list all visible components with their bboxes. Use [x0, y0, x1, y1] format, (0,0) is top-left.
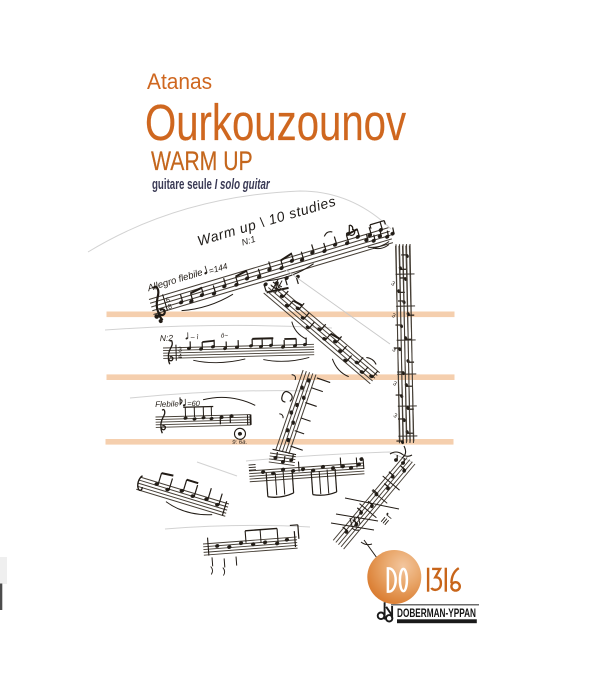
svg-text:– ì: – ì: [190, 334, 199, 341]
svg-text:Flebile: Flebile: [155, 399, 179, 409]
svg-text:3: 3: [391, 381, 397, 388]
svg-text:=144: =144: [207, 261, 228, 276]
svg-text:4: 4: [178, 354, 182, 361]
svg-text:DOBERMAN-YPPAN: DOBERMAN-YPPAN: [397, 608, 476, 620]
svg-text:3: 3: [392, 413, 398, 420]
svg-text:3: 3: [391, 347, 397, 354]
svg-text:N:2: N:2: [160, 333, 174, 343]
svg-text:ô~: ô~: [221, 332, 229, 339]
svg-text:3: 3: [390, 281, 396, 288]
svg-text:9: 6a.: 9: 6a.: [232, 440, 247, 446]
